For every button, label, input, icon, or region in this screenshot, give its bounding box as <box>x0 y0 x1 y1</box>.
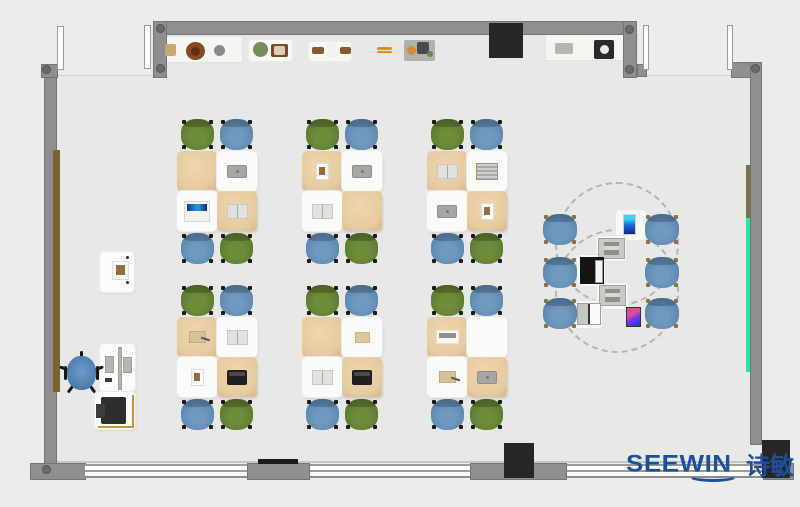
shelf-box-tan <box>165 44 176 56</box>
shelf-stick-right <box>340 47 351 54</box>
window-band-2 <box>310 464 470 478</box>
tray-bit-green <box>427 51 433 57</box>
blue-student-chair <box>306 233 339 264</box>
green-student-chair <box>345 399 378 430</box>
lectern-dot <box>126 281 129 284</box>
logo-swoosh-icon <box>688 470 738 482</box>
desk-item-bookTan <box>439 371 456 383</box>
student-desk-tan <box>302 317 342 357</box>
wall-bottom-pier-1 <box>247 463 310 480</box>
blue-student-chair <box>181 399 214 430</box>
blue-student-chair <box>470 119 503 150</box>
teacher-chair-seat <box>67 356 96 390</box>
collab-device-blackLaptop <box>580 257 604 284</box>
wall-bottom-left-corner <box>30 463 86 480</box>
brand-name-chinese: 诗敏 <box>746 446 794 481</box>
tray-ball-orange <box>407 46 416 55</box>
desk-item-tablet <box>477 371 497 384</box>
green-student-chair <box>306 119 339 150</box>
teacher-chair <box>62 351 100 397</box>
lectern-book <box>112 261 129 280</box>
blue-student-chair <box>181 233 214 264</box>
wall-joint-dot <box>625 25 634 34</box>
printer-tray <box>96 404 105 418</box>
collab-device-tabletBlue <box>623 214 636 235</box>
teacher-desk-item <box>105 378 112 382</box>
green-student-chair <box>306 285 339 316</box>
green-student-chair <box>220 233 253 264</box>
blue-student-chair <box>431 399 464 430</box>
collab-device-tabletColor <box>626 307 641 327</box>
blue-student-chair <box>306 399 339 430</box>
student-desk-tan <box>342 191 382 231</box>
desk-item-laptopBlack <box>352 370 372 385</box>
blue-student-chair <box>345 285 378 316</box>
student-desk-tan <box>177 151 217 191</box>
desk-item-bookOpen <box>437 164 458 179</box>
green-student-chair <box>431 285 464 316</box>
desk-item-stripedBook <box>476 163 498 180</box>
wall-joint-dot <box>156 64 165 73</box>
wall-joint-dot <box>751 64 760 73</box>
shelf-ruler-orange-2 <box>377 51 392 53</box>
blue-student-chair <box>431 233 464 264</box>
desk-item-bookOpen <box>227 330 248 345</box>
seewin-logo: SEEWIN 诗敏 <box>626 444 800 486</box>
shelf-plant-green <box>253 42 268 57</box>
desk-item-laptopBlack <box>227 370 247 385</box>
blue-student-chair <box>220 285 253 316</box>
collab-chair <box>645 214 679 245</box>
collab-chair <box>543 214 577 245</box>
door-leaf-frame-4 <box>727 25 733 70</box>
collab-chair <box>543 298 577 329</box>
green-student-chair <box>470 399 503 430</box>
shelf-box-white <box>326 43 339 57</box>
bottom-column <box>504 443 534 478</box>
desk-item-bookOpen <box>312 370 333 385</box>
desk-item-paperTan <box>355 332 370 343</box>
student-desk-white <box>467 317 507 357</box>
desk-item-tablet <box>227 165 247 178</box>
door-leaf-frame-2 <box>144 25 151 69</box>
radiator-bar <box>258 459 298 464</box>
blue-student-chair <box>345 119 378 150</box>
green-student-chair <box>431 119 464 150</box>
wall-top <box>153 21 637 35</box>
wall-right <box>750 62 762 445</box>
desk-divider <box>118 347 122 390</box>
desk-item-photo <box>481 203 494 220</box>
green-student-chair <box>345 233 378 264</box>
wall-joint-dot <box>42 465 51 474</box>
green-student-chair <box>470 233 503 264</box>
desk-item-bookOpen <box>227 204 248 219</box>
printer-outline-right <box>132 395 134 428</box>
green-student-chair <box>181 119 214 150</box>
wall-joint-dot <box>625 65 634 74</box>
desk-item-keyboard <box>436 330 459 344</box>
door-leaf-frame-3 <box>643 25 649 70</box>
desk-item-tablet <box>437 205 457 218</box>
wall-joint-dot <box>156 24 165 33</box>
wall-joint-dot <box>42 65 51 74</box>
blue-student-chair <box>220 119 253 150</box>
teacher-monitor <box>123 357 132 373</box>
green-student-chair <box>181 285 214 316</box>
collab-chair <box>543 257 577 288</box>
desk-item-tablet <box>352 165 372 178</box>
collab-device-grayDev <box>598 238 625 259</box>
shelf-disc-gray <box>214 45 225 56</box>
lectern-dot <box>126 256 129 259</box>
shelf-plate-center <box>191 47 200 56</box>
floor-plan-canvas: SEEWIN 诗敏 <box>0 0 800 507</box>
shelf-stick-left <box>312 47 324 54</box>
green-student-chair <box>220 399 253 430</box>
desk-item-bookTan <box>189 331 206 343</box>
entry-opening-left <box>57 35 153 76</box>
desk-item-photo <box>191 369 204 386</box>
collab-device-grayDev <box>599 285 626 306</box>
shelf-frame-photo <box>274 46 285 55</box>
rightshelf-device-dial <box>600 45 609 54</box>
desk-item-photo <box>316 163 329 180</box>
rightshelf-box-gray <box>555 43 573 54</box>
right-wall-green-strip <box>746 218 750 372</box>
desk-item-laptopBlue <box>184 201 210 222</box>
collab-device-smallLaptop <box>577 303 601 325</box>
top-cabinet <box>489 23 523 58</box>
teacher-monitor <box>105 356 114 373</box>
collab-chair <box>645 257 679 288</box>
desk-item-bookOpen <box>312 204 333 219</box>
door-leaf-frame-1 <box>57 26 64 70</box>
window-band-1 <box>85 464 247 478</box>
shelf-ruler-orange-1 <box>377 47 392 50</box>
left-wall-wood-panel <box>53 150 60 392</box>
right-wall-olive-panel <box>746 165 751 218</box>
blue-student-chair <box>470 285 503 316</box>
collab-chair <box>645 298 679 329</box>
printer-outline-bottom <box>98 426 134 428</box>
